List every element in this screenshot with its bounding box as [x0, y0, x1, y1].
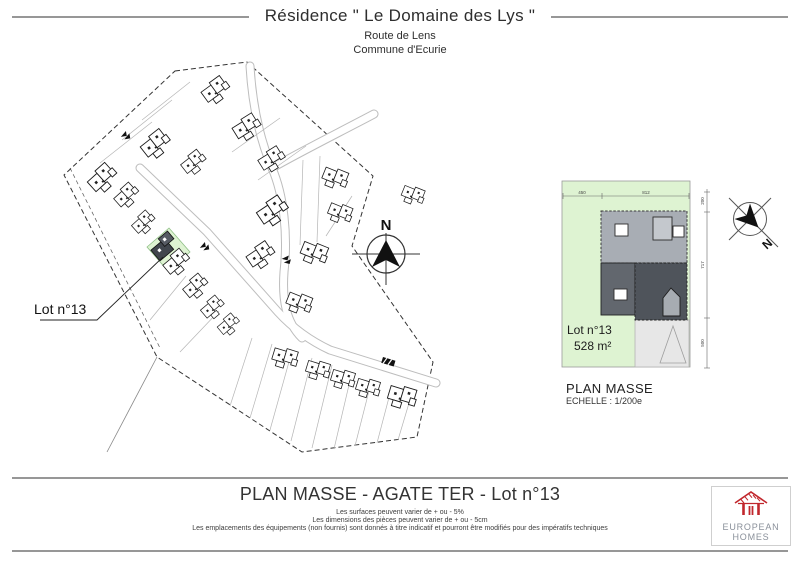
- window: [615, 224, 628, 236]
- detail-caption-scale: ECHELLE : 1/200e: [566, 396, 642, 406]
- house-footprint: [386, 383, 419, 412]
- window: [673, 226, 684, 237]
- house-footprint: [112, 181, 142, 211]
- house-footprint: [304, 358, 332, 383]
- house-footprint: [298, 239, 330, 268]
- detail-compass-n: N: [759, 236, 775, 252]
- site-compass-n: N: [381, 217, 392, 234]
- driveway-area: [635, 320, 689, 367]
- disclaimer-line: Les emplacements des équipements (non fo…: [0, 525, 800, 534]
- page-title-text: Résidence " Le Domaine des Lys ": [249, 6, 552, 26]
- detail-lot-area: 528 m²: [574, 339, 611, 353]
- dim-top-1: 450: [578, 190, 586, 195]
- house-footprint: [199, 294, 227, 322]
- house-footprint: [138, 127, 174, 162]
- plan-drawing: N: [0, 0, 800, 566]
- house-footprint: [270, 345, 300, 371]
- dim-right-3: 500: [700, 339, 705, 347]
- dim-top-2: 812: [642, 190, 650, 195]
- footer-title: PLAN MASSE - AGATE TER - Lot n°13: [0, 484, 800, 505]
- dim-right-2: 717: [700, 261, 705, 269]
- window: [614, 289, 627, 300]
- house-footprint: [326, 200, 355, 226]
- plan-sheet: Résidence " Le Domaine des Lys " Route d…: [0, 0, 800, 566]
- house-footprint: [216, 312, 243, 338]
- european-homes-logo: EUROPEAN HOMES: [711, 486, 791, 546]
- house-footprint: [399, 183, 426, 208]
- road-network: [140, 66, 436, 383]
- detail-compass-icon: N: [729, 198, 778, 252]
- house-footprint: [329, 367, 357, 392]
- logo-house-icon: [730, 490, 772, 517]
- house-footprint: [130, 209, 158, 237]
- bottom-rule: [12, 550, 788, 552]
- detail-lot-label: Lot n°13: [567, 323, 612, 337]
- detail-house: [601, 211, 687, 320]
- house-footprint: [199, 74, 233, 107]
- house-footprint: [179, 148, 209, 177]
- lot13-label: Lot n°13: [34, 301, 86, 317]
- site-compass-icon: N: [352, 217, 420, 285]
- house-footprint: [244, 240, 278, 272]
- logo-text-line1: EUROPEAN: [712, 522, 790, 532]
- chimney: [653, 217, 672, 240]
- house-footprint: [354, 376, 382, 401]
- detail-caption-title: PLAN MASSE: [566, 381, 653, 396]
- logo-text-line2: HOMES: [712, 532, 790, 542]
- house-footprint: [320, 165, 351, 193]
- footer-rule: [12, 477, 788, 479]
- dim-right-1: 200: [700, 197, 705, 205]
- page-title: Résidence " Le Domaine des Lys ": [0, 6, 800, 26]
- house-footprint: [85, 161, 121, 196]
